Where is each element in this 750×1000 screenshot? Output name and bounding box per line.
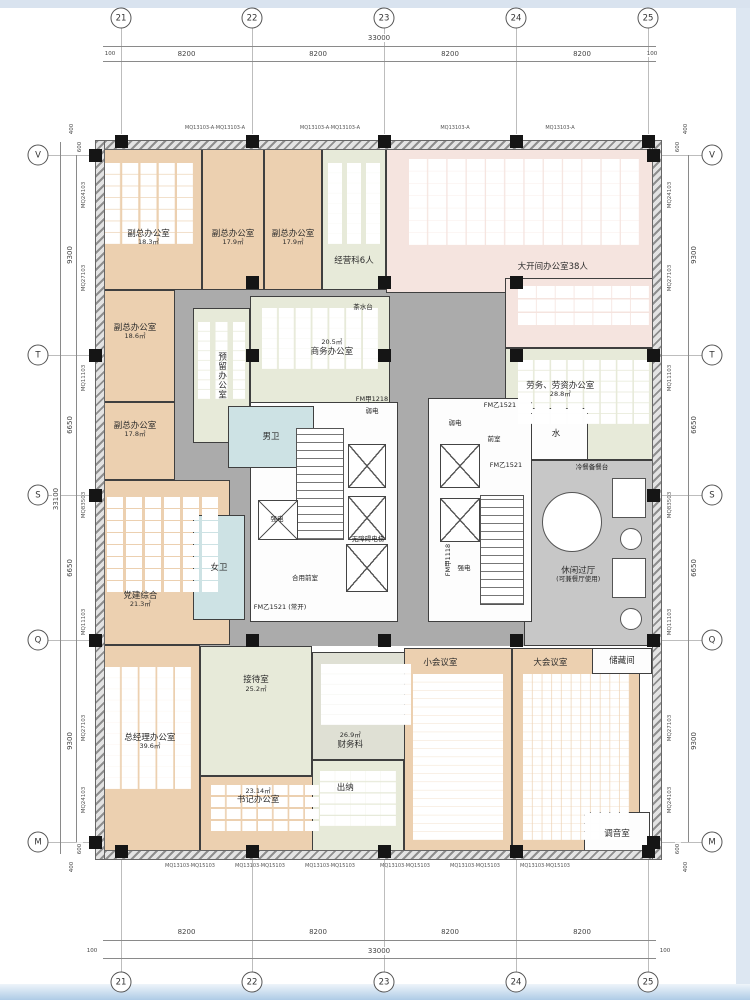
mullion-tag: MQ13103·MQ15103 <box>305 863 355 869</box>
grid-bubble-col-23: 23 <box>374 972 395 993</box>
mullion-tag: MQ13103-A·MQ13103-A <box>185 125 245 131</box>
room-label: 26.9㎡财务科 <box>338 732 364 750</box>
dim-end: 100 <box>646 51 659 57</box>
dim-line <box>688 155 689 842</box>
furniture-desks <box>321 664 410 725</box>
core-label: 弱电 <box>449 417 462 427</box>
room-label: 经营科6人 <box>334 256 373 266</box>
grid-line <box>121 860 122 972</box>
room-副总办公室: 副总办公室18.6㎡ <box>95 290 175 402</box>
room-label: 女卫 <box>210 562 227 572</box>
mullion-tag: MQ13103·MQ15103 <box>520 863 570 869</box>
elevator-shaft <box>348 444 386 488</box>
dim-span: 9300 <box>66 731 74 751</box>
dim-span: 9300 <box>690 245 698 265</box>
mullion-tag: MQ27103 <box>81 715 87 742</box>
sofa <box>612 558 646 598</box>
furniture-desks <box>104 667 191 789</box>
furniture-chair-rows <box>523 674 629 840</box>
room-label: 党建综合21.3㎡ <box>123 591 157 609</box>
mullion-tag: MQ13103-A <box>545 125 574 131</box>
room-储藏间: 储藏间 <box>592 648 652 674</box>
grid-line <box>384 28 385 134</box>
mullion-tag: MQ27103 <box>667 715 673 742</box>
structural-column <box>115 135 128 148</box>
grid-line <box>662 355 702 356</box>
core-label: FM甲1118 <box>442 544 452 576</box>
room-副总办公室: 副总办公室17.9㎡ <box>264 148 322 290</box>
structural-column <box>246 845 259 858</box>
furniture-chair-rows <box>413 674 502 840</box>
structural-column <box>246 135 259 148</box>
structural-column <box>246 349 259 362</box>
room-书记办公室: 23.14㎡书记办公室 <box>200 776 330 858</box>
grid-line <box>252 860 253 972</box>
dim-extra: 400 <box>683 861 689 874</box>
grid-bubble-row-Q: Q <box>28 630 49 651</box>
room-副总办公室: 副总办公室18.3㎡ <box>95 148 202 290</box>
dim-end: 100 <box>86 948 99 954</box>
room-label: 大会议室 <box>533 658 567 668</box>
mullion-tag: MQ13103·MQ15103 <box>380 863 430 869</box>
furniture-desks <box>518 286 648 325</box>
dim-span: 8200 <box>572 50 592 58</box>
grid-bubble-row-S: S <box>28 485 49 506</box>
room-经营科6人: 经营科6人 <box>322 148 386 290</box>
room-aux-5 <box>505 278 662 348</box>
grid-line <box>648 860 649 972</box>
grid-line <box>516 860 517 972</box>
grid-bubble-col-25: 25 <box>638 8 659 29</box>
round-table <box>542 492 602 552</box>
dim-extra: 400 <box>69 861 75 874</box>
grid-line <box>121 28 122 134</box>
room-label: 副总办公室17.9㎡ <box>212 229 255 247</box>
room-接待室: 接待室25.2㎡ <box>200 646 312 776</box>
mullion-tag: MQ13103-A·MQ13103-A <box>300 125 360 131</box>
room-label: 副总办公室17.8㎡ <box>114 421 157 439</box>
structural-column <box>647 634 660 647</box>
round-table <box>620 608 642 630</box>
core-label: 强电 <box>271 513 284 523</box>
mullion-tag: MQ24103 <box>81 787 87 814</box>
dim-end: 100 <box>659 948 672 954</box>
dim-span: 8200 <box>177 928 197 936</box>
mullion-tag: MQ24103 <box>667 182 673 209</box>
grid-bubble-col-23: 23 <box>374 8 395 29</box>
grid-line <box>48 155 89 156</box>
structural-column <box>246 276 259 289</box>
grid-bubble-row-S: S <box>702 485 723 506</box>
room-label: 20.5㎡商务办公室 <box>311 339 354 357</box>
room-label: 大开间办公室38人 <box>518 262 588 272</box>
dim-left-total: 33100 <box>52 487 60 511</box>
structural-column <box>378 634 391 647</box>
structural-column <box>510 135 523 148</box>
structural-column <box>642 135 655 148</box>
room-label: 接待室25.2㎡ <box>243 675 269 693</box>
structural-column <box>510 634 523 647</box>
stair-flight <box>296 428 344 540</box>
room-label: 小会议室 <box>423 658 457 668</box>
room-副总办公室: 副总办公室17.9㎡ <box>202 148 264 290</box>
dim-bottom-total: 33000 <box>367 947 391 955</box>
grid-bubble-col-22: 22 <box>242 8 263 29</box>
dim-span: 9300 <box>66 245 74 265</box>
dim-line <box>103 61 656 62</box>
dim-span: 6650 <box>66 415 74 435</box>
room-label: 副总办公室17.9㎡ <box>272 229 315 247</box>
room-label: 休闲过厅(可兼餐厅使用) <box>556 566 600 584</box>
structural-column <box>510 276 523 289</box>
mullion-tag: MQ24103 <box>667 787 673 814</box>
room-label: 劳务、劳资办公室28.8㎡ <box>526 381 594 399</box>
grid-line <box>48 355 89 356</box>
room-商务办公室: 20.5㎡商务办公室 <box>250 296 390 404</box>
room-label: 副总办公室18.3㎡ <box>127 229 170 247</box>
structural-column <box>89 349 102 362</box>
grid-line <box>662 640 702 641</box>
sofa <box>612 478 646 518</box>
grid-bubble-row-M: M <box>702 832 723 853</box>
grid-line <box>648 28 649 134</box>
mullion-tag: MQ83503 <box>667 492 673 519</box>
room-label: 总经理办公室39.6㎡ <box>124 733 175 751</box>
room-label: 调音室 <box>604 829 630 839</box>
furniture-desks <box>107 497 219 592</box>
structural-column <box>647 489 660 502</box>
mullion-tag: MQ13103·MQ15103 <box>235 863 285 869</box>
room-小会议室: 小会议室 <box>404 648 512 858</box>
furniture-desks <box>328 163 380 244</box>
dim-extra: 600 <box>77 843 83 856</box>
core-label: 无障碍电梯 <box>352 533 385 543</box>
room-label: 副总办公室18.6㎡ <box>114 323 157 341</box>
core-label: FM甲1218 <box>356 393 388 403</box>
grid-line <box>662 155 702 156</box>
core-label: 强电 <box>458 562 471 572</box>
core-label: FM乙1521 <box>490 459 522 469</box>
dim-top-total: 33000 <box>367 34 391 42</box>
mullion-tag: MQ13103·MQ15103 <box>165 863 215 869</box>
structural-column <box>378 845 391 858</box>
furniture-desks <box>409 159 639 245</box>
structural-column <box>378 349 391 362</box>
core-label: 合用前室 <box>292 572 318 582</box>
grid-bubble-col-24: 24 <box>506 972 527 993</box>
structural-column <box>89 489 102 502</box>
room-副总办公室: 副总办公室17.8㎡ <box>95 402 175 480</box>
structural-column <box>89 634 102 647</box>
mullion-tag: MQ11103 <box>81 609 87 636</box>
dim-extra: 400 <box>69 123 75 136</box>
grid-bubble-col-24: 24 <box>506 8 527 29</box>
mullion-tag: MQ11103 <box>667 365 673 392</box>
dim-extra: 600 <box>675 843 681 856</box>
grid-bubble-row-V: V <box>702 145 723 166</box>
structural-column <box>510 845 523 858</box>
mullion-tag: MQ27103 <box>81 265 87 292</box>
dim-span: 6650 <box>66 558 74 578</box>
structural-column <box>510 349 523 362</box>
dim-line <box>103 940 656 941</box>
furniture-desks <box>320 771 396 827</box>
grid-bubble-col-25: 25 <box>638 972 659 993</box>
structural-column <box>89 149 102 162</box>
room-label: 水 <box>552 429 561 439</box>
dim-extra: 600 <box>675 141 681 154</box>
dim-span: 8200 <box>308 50 328 58</box>
grid-bubble-row-M: M <box>28 832 49 853</box>
dim-span: 8200 <box>177 50 197 58</box>
room-label: 预留办公室 <box>216 352 226 400</box>
grid-bubble-row-Q: Q <box>702 630 723 651</box>
core-label: FM乙1521 (常开) <box>254 601 307 611</box>
room-出纳: 出纳 <box>312 760 404 858</box>
room-label: 男卫 <box>262 432 279 442</box>
dim-line <box>76 155 77 842</box>
grid-bubble-col-21: 21 <box>111 8 132 29</box>
dim-span: 8200 <box>572 928 592 936</box>
dim-end: 100 <box>104 51 117 57</box>
dim-span: 8200 <box>440 50 460 58</box>
grid-bubble-row-V: V <box>28 145 49 166</box>
elevator-shaft <box>346 544 388 592</box>
dim-span: 8200 <box>308 928 328 936</box>
grid-line <box>48 640 89 641</box>
dim-extra: 400 <box>683 123 689 136</box>
mullion-tag: MQ24103 <box>81 182 87 209</box>
grid-bubble-col-21: 21 <box>111 972 132 993</box>
grid-bubble-row-T: T <box>702 345 723 366</box>
grid-line <box>662 842 702 843</box>
core-label: FM乙1521 <box>484 399 516 409</box>
dim-line <box>103 46 656 47</box>
room-大开间办公室38人: 大开间办公室38人 <box>386 143 662 293</box>
core-label: 茶水台 <box>353 301 373 311</box>
floorplan-page: { "drawing": {"kind": "office-floor-plan… <box>0 0 750 1000</box>
dim-span: 6650 <box>690 558 698 578</box>
floor-plan-canvas: 33000 33000 33100 副总办公室18.3㎡副总办公室17.9㎡副总… <box>0 0 750 1000</box>
grid-line <box>384 860 385 972</box>
structural-column <box>378 276 391 289</box>
core-label: 弱电 <box>366 405 379 415</box>
structural-column <box>89 836 102 849</box>
grid-line <box>516 28 517 134</box>
elevator-shaft <box>440 498 480 542</box>
structural-column <box>246 634 259 647</box>
structural-column <box>647 349 660 362</box>
grid-bubble-col-22: 22 <box>242 972 263 993</box>
structural-column <box>647 836 660 849</box>
dim-extra: 600 <box>77 141 83 154</box>
structural-column <box>647 149 660 162</box>
mullion-tag: MQ83503 <box>81 492 87 519</box>
dim-line <box>60 142 61 854</box>
structural-column <box>378 135 391 148</box>
room-label: 出纳 <box>337 783 354 793</box>
structural-column <box>115 845 128 858</box>
room-label: 储藏间 <box>609 656 635 666</box>
round-table <box>620 528 642 550</box>
mullion-tag: MQ11103 <box>667 609 673 636</box>
dim-span: 9300 <box>690 731 698 751</box>
room-label: 23.14㎡书记办公室 <box>237 788 280 806</box>
grid-bubble-row-T: T <box>28 345 49 366</box>
mullion-tag: MQ13103-A <box>440 125 469 131</box>
core-label: 冷餐备餐台 <box>576 461 609 471</box>
room-大会议室: 大会议室 <box>512 648 640 858</box>
core-label: 前室 <box>488 433 501 443</box>
elevator-shaft <box>440 444 480 488</box>
room-总经理办公室: 总经理办公室39.6㎡ <box>95 645 200 858</box>
dim-span: 8200 <box>440 928 460 936</box>
mullion-tag: MQ11103 <box>81 365 87 392</box>
stair-flight <box>480 495 524 605</box>
grid-line <box>252 28 253 134</box>
mullion-tag: MQ13103·MQ15103 <box>450 863 500 869</box>
mullion-tag: MQ27103 <box>667 265 673 292</box>
dim-line <box>103 958 656 959</box>
dim-span: 6650 <box>690 415 698 435</box>
